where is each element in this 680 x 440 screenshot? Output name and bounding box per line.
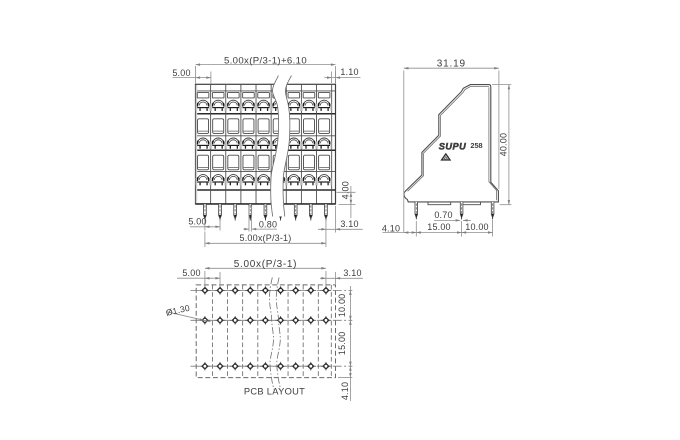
svg-text:4.00: 4.00 [341,181,351,199]
svg-text:15.00: 15.00 [427,222,451,232]
svg-text:SUPU: SUPU [439,141,467,151]
svg-text:4.10: 4.10 [382,223,400,233]
svg-text:5.00: 5.00 [172,68,190,78]
svg-text:0.80: 0.80 [259,219,277,229]
svg-text:PCB LAYOUT: PCB LAYOUT [244,386,305,396]
svg-text:5.00x(P/3-1)+6.10: 5.00x(P/3-1)+6.10 [224,55,307,66]
svg-text:1.10: 1.10 [340,67,358,77]
svg-text:40.00: 40.00 [499,133,509,157]
svg-text:5.00: 5.00 [188,216,206,226]
svg-text:15.00: 15.00 [337,332,347,356]
svg-text:4.10: 4.10 [340,382,350,400]
svg-text:0.70: 0.70 [434,210,452,220]
svg-text:10.00: 10.00 [337,294,347,318]
svg-text:10.00: 10.00 [465,222,489,232]
svg-text:3.10: 3.10 [343,268,361,278]
svg-text:31.19: 31.19 [437,58,466,69]
svg-text:5.00x(P/3-1): 5.00x(P/3-1) [234,259,297,270]
svg-text:5.00x(P/3-1): 5.00x(P/3-1) [240,233,292,243]
svg-text:3.10: 3.10 [340,219,358,229]
svg-text:258: 258 [470,141,482,150]
svg-text:5.00: 5.00 [182,268,200,278]
